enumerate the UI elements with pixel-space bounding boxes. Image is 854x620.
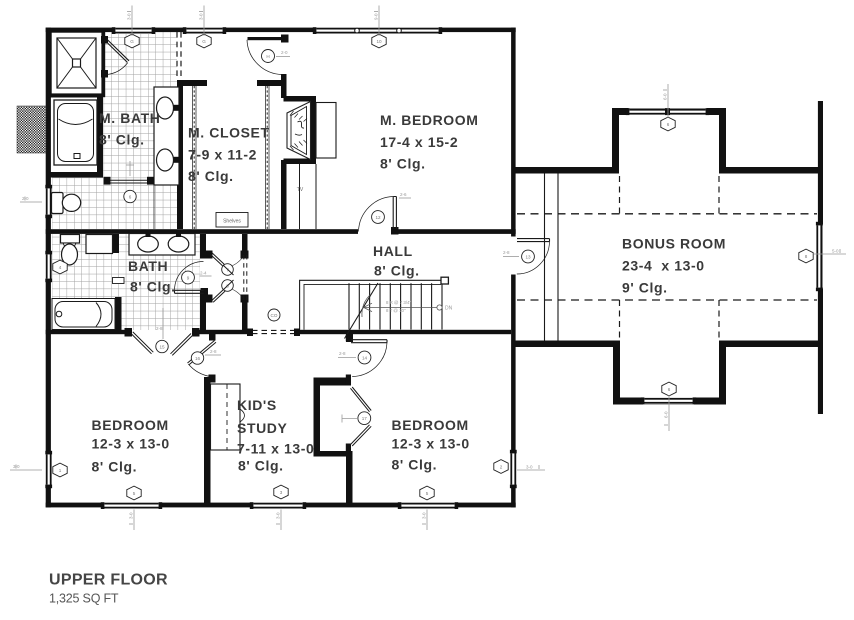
svg-text:15: 15 (159, 344, 165, 349)
svg-text:10: 10 (376, 39, 382, 44)
svg-text:4: 4 (59, 265, 62, 270)
svg-text:3-0: 3-0 (422, 512, 427, 519)
svg-text:17: 17 (362, 416, 368, 421)
svg-text:Shelves: Shelves (223, 219, 241, 225)
svg-text:9: 9 (187, 275, 190, 280)
svg-text:6: 6 (668, 387, 671, 392)
svg-text:5-0: 5-0 (832, 249, 839, 254)
svg-text:1,325 SQ FT: 1,325 SQ FT (49, 592, 119, 606)
svg-text:8' Clg.: 8' Clg. (374, 263, 420, 279)
svg-text:3-0: 3-0 (526, 465, 533, 470)
svg-text:3-0: 3-0 (129, 512, 134, 519)
svg-text:2: 2 (500, 464, 503, 469)
svg-text:5: 5 (133, 491, 136, 496)
svg-text:HALL: HALL (373, 243, 413, 259)
svg-text:2-0: 2-0 (22, 196, 29, 201)
svg-text:8 T @ 10": 8 T @ 10" (386, 308, 406, 313)
svg-text:6-0: 6-0 (663, 93, 668, 100)
svg-text:6: 6 (667, 122, 670, 127)
svg-text:6: 6 (129, 194, 132, 199)
svg-text:G: G (130, 39, 134, 44)
svg-text:2-8: 2-8 (210, 349, 217, 354)
svg-text:2-6: 2-6 (400, 192, 407, 197)
svg-text:8' Clg.: 8' Clg. (392, 457, 438, 473)
svg-text:12-3 x 13-0: 12-3 x 13-0 (392, 436, 470, 452)
svg-text:3-0: 3-0 (13, 464, 20, 469)
svg-text:G: G (202, 39, 206, 44)
svg-text:TV: TV (297, 187, 304, 193)
svg-text:H: H (266, 54, 269, 59)
svg-text:2-8: 2-8 (156, 326, 163, 331)
svg-text:2-8: 2-8 (339, 351, 346, 356)
svg-text:9' Clg.: 9' Clg. (622, 280, 668, 296)
svg-text:12: 12 (375, 215, 381, 220)
svg-text:STUDY: STUDY (237, 420, 288, 436)
svg-text:3-0: 3-0 (199, 13, 204, 20)
svg-text:KID'S: KID'S (237, 397, 277, 413)
svg-text:M. CLOSET: M. CLOSET (188, 125, 270, 141)
svg-text:8 R @ 7 3/4": 8 R @ 7 3/4" (386, 300, 411, 305)
svg-text:DN: DN (445, 305, 453, 311)
svg-text:1: 1 (59, 468, 62, 473)
svg-text:8: 8 (805, 254, 808, 259)
svg-text:5: 5 (426, 491, 429, 496)
svg-text:8' Clg.: 8' Clg. (238, 458, 284, 474)
svg-text:7-11 x 13-0: 7-11 x 13-0 (237, 441, 314, 457)
svg-text:2-4: 2-4 (200, 271, 207, 276)
svg-text:UPPER FLOOR: UPPER FLOOR (49, 572, 168, 589)
svg-text:3: 3 (280, 490, 283, 495)
svg-text:BEDROOM: BEDROOM (392, 417, 469, 433)
svg-text:BONUS ROOM: BONUS ROOM (622, 236, 726, 252)
svg-text:6-0: 6-0 (664, 411, 669, 418)
svg-text:17-4 x 15-2: 17-4 x 15-2 (380, 134, 458, 150)
svg-text:13: 13 (525, 254, 531, 259)
svg-text:12-3 x 13-0: 12-3 x 13-0 (92, 436, 170, 452)
svg-text:2-0: 2-0 (281, 50, 288, 55)
svg-text:CO: CO (271, 313, 278, 318)
svg-text:3-0: 3-0 (127, 13, 132, 20)
svg-text:8' Clg.: 8' Clg. (130, 279, 176, 295)
svg-text:16: 16 (195, 356, 201, 361)
svg-text:23-4 x 13-0: 23-4 x 13-0 (622, 258, 705, 274)
svg-text:7-9 x 11-2: 7-9 x 11-2 (188, 147, 257, 163)
svg-text:8' Clg.: 8' Clg. (188, 168, 234, 184)
svg-text:BATH: BATH (128, 258, 168, 274)
svg-text:M. BEDROOM: M. BEDROOM (380, 112, 479, 128)
svg-text:3-0: 3-0 (276, 512, 281, 519)
svg-text:14: 14 (362, 355, 368, 360)
svg-text:8' Clg.: 8' Clg. (380, 156, 426, 172)
svg-text:9-0: 9-0 (374, 13, 379, 20)
svg-text:8' Clg.: 8' Clg. (92, 459, 138, 475)
svg-text:8' Clg.: 8' Clg. (99, 132, 145, 148)
svg-text:M. BATH: M. BATH (99, 110, 161, 126)
svg-text:BEDROOM: BEDROOM (92, 417, 169, 433)
svg-text:2-8: 2-8 (503, 250, 510, 255)
